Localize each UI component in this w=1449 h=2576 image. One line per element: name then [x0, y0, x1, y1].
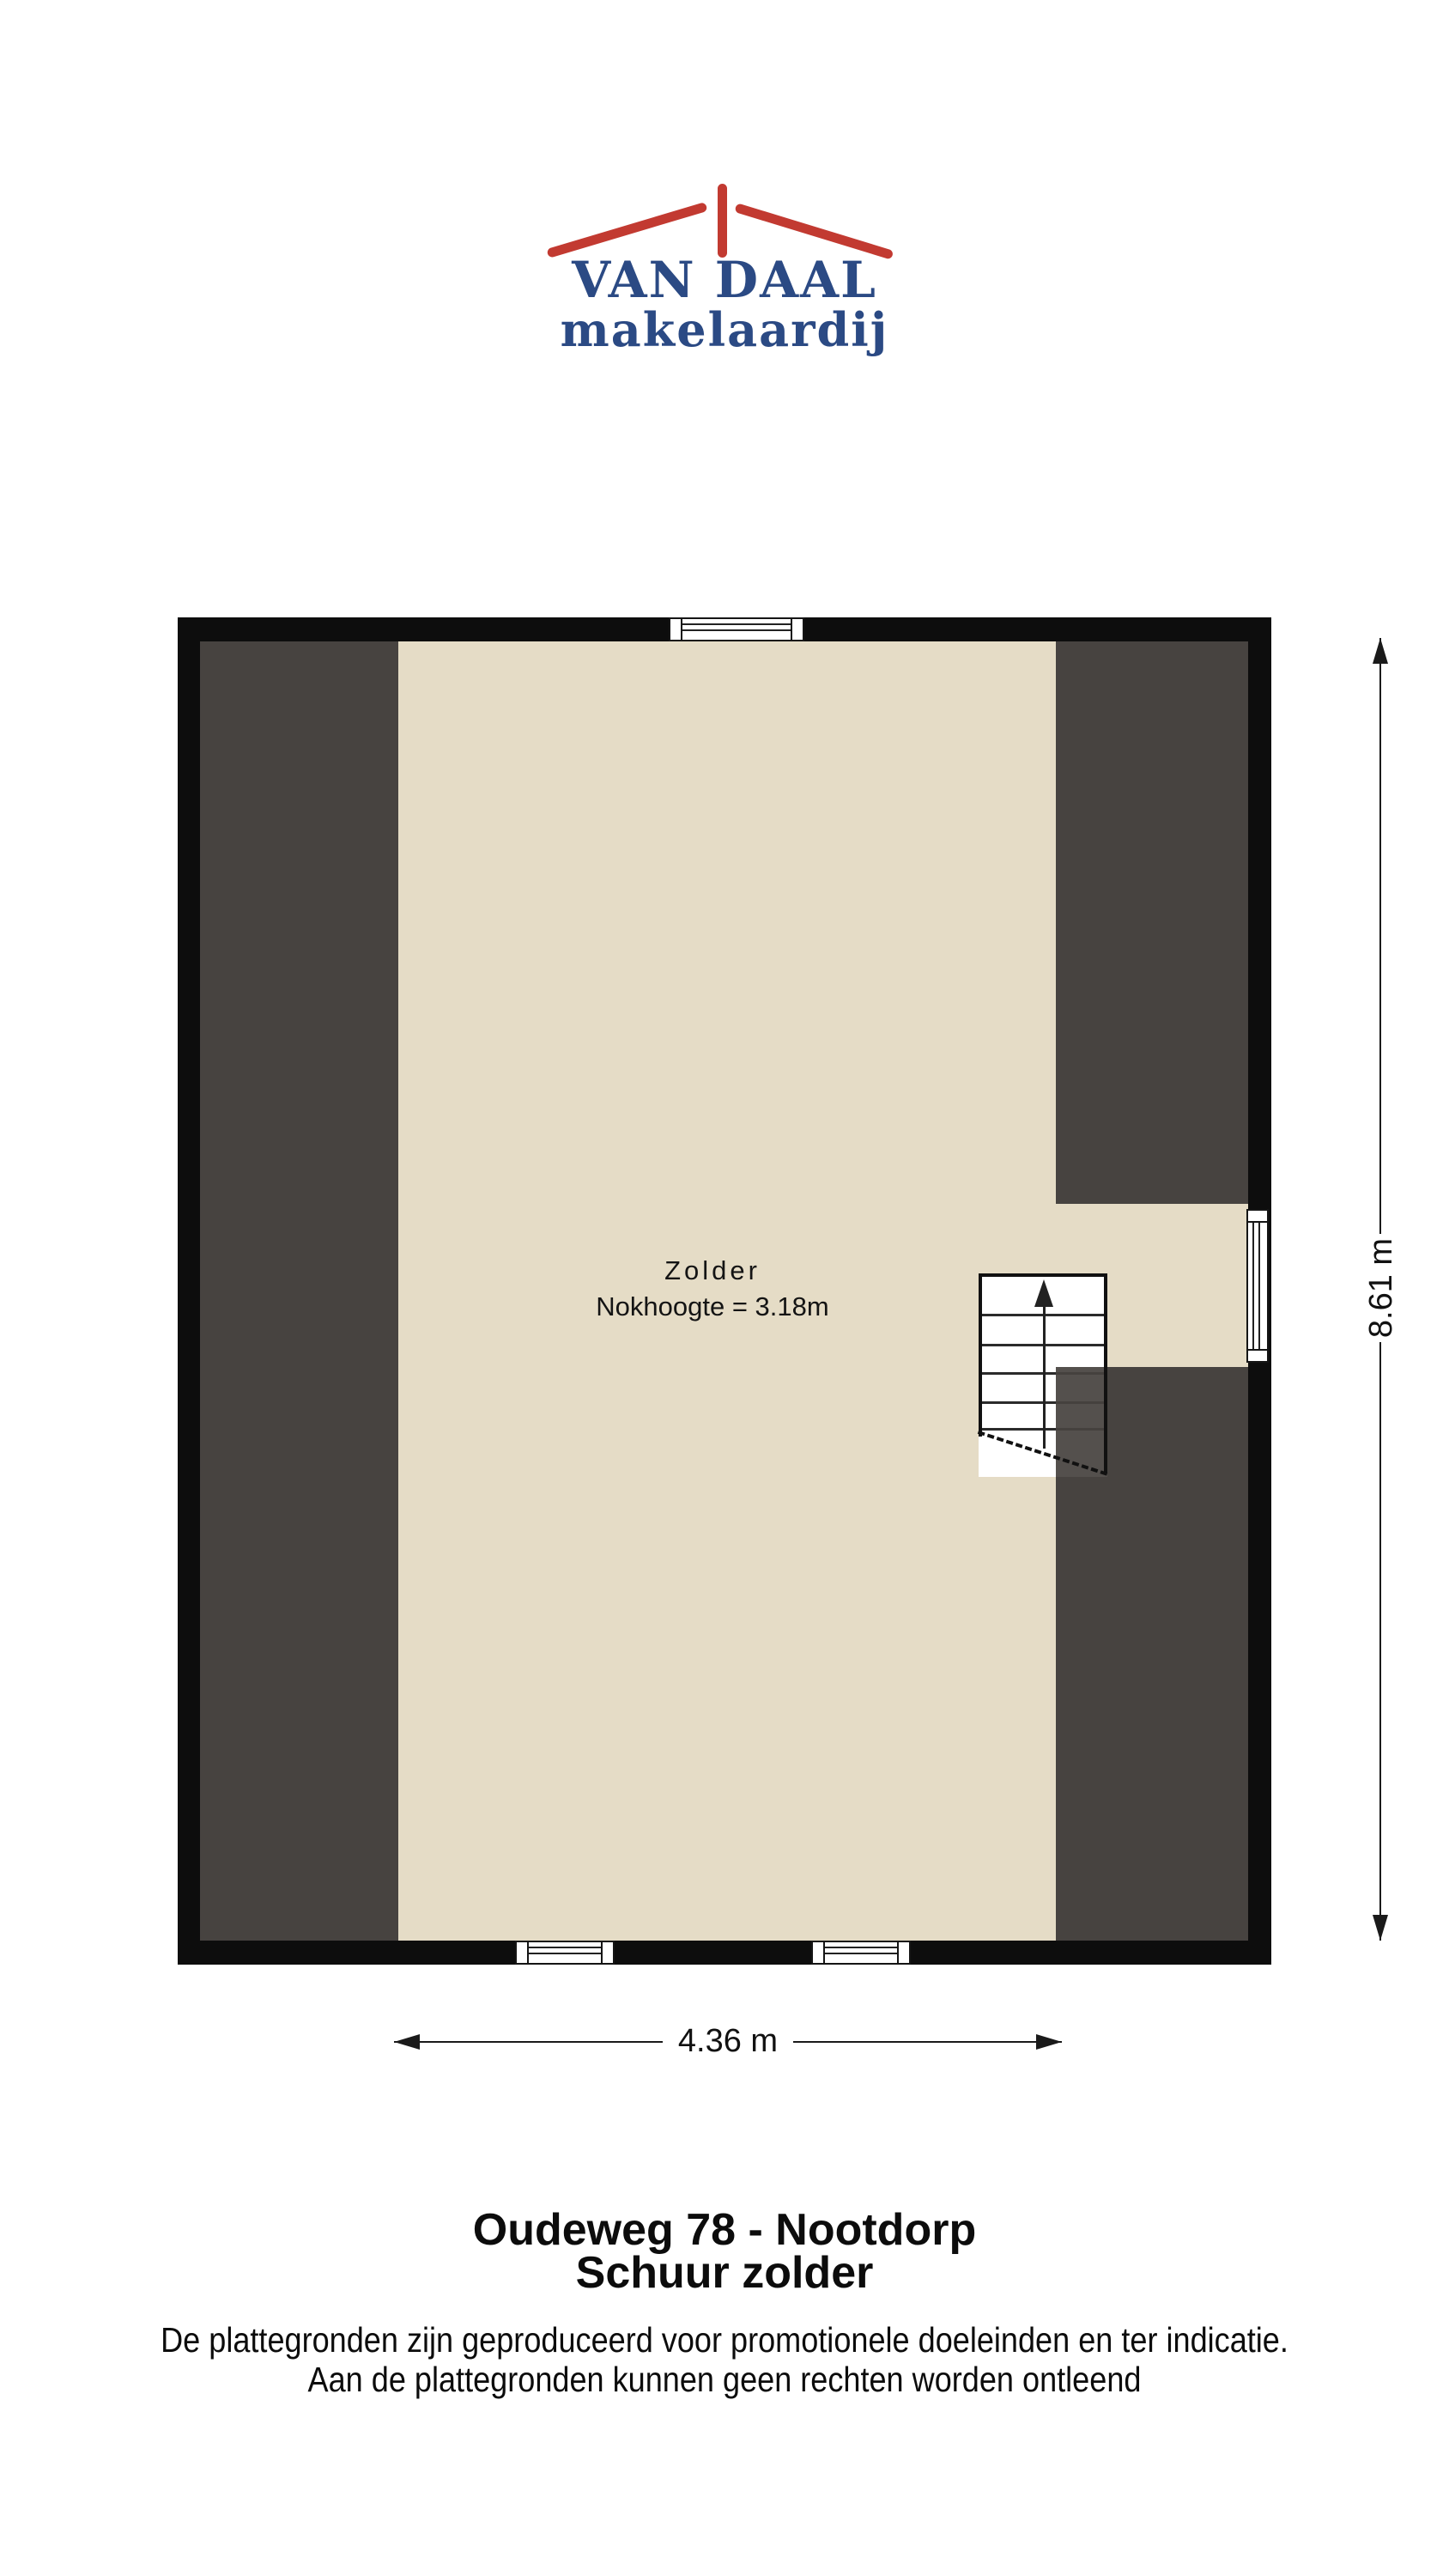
window-frame-cap: [897, 1942, 899, 1963]
window-glazing: [529, 1947, 601, 1959]
window-frame-cap: [681, 619, 682, 640]
window-frame-cap: [1248, 1221, 1267, 1223]
window-glazing: [825, 1947, 897, 1959]
logo-roof-left-icon: [546, 202, 707, 258]
roof-area-left: [200, 641, 398, 1941]
window-top: [669, 617, 804, 641]
address-title: Oudeweg 78 - Nootdorp Schuur zolder: [0, 2208, 1449, 2294]
dimension-line: [1379, 1342, 1381, 1941]
roof-area-right-bottom-below-stair: [1056, 1477, 1107, 1941]
window-bottom-left: [515, 1941, 615, 1965]
window-bottom-right: [811, 1941, 911, 1965]
dimension-arrow-left-icon: [394, 2034, 420, 2050]
stair-left-edge: [979, 1273, 982, 1437]
stair-direction-arrow: [1043, 1305, 1046, 1449]
logo-roof-ridge-icon: [718, 184, 727, 258]
page: VAN DAAL makelaardij: [0, 0, 1449, 2576]
disclaimer-line-1: De plattegronden zijn geproduceerd voor …: [87, 2320, 1361, 2360]
window-right: [1246, 1209, 1269, 1363]
window-frame-cap: [823, 1942, 825, 1963]
floor-name-line: Schuur zolder: [0, 2251, 1449, 2294]
window-glazing: [682, 623, 791, 635]
dimension-arrow-right-icon: [1036, 2034, 1062, 2050]
room-ridge-height-label: Nokhoogte = 3.18m: [584, 1291, 841, 1322]
logo-title: VAN DAAL: [0, 251, 1449, 309]
dimension-arrow-up-icon: [1373, 638, 1388, 664]
width-dimension-label: 4.36 m: [659, 2023, 797, 2060]
dimension-line: [1379, 638, 1381, 1234]
stair-right-edge: [1104, 1273, 1107, 1473]
roof-area-right-top: [1056, 641, 1248, 1204]
stair-arrow-up-icon: [1034, 1279, 1053, 1307]
stair-top-edge: [979, 1273, 1107, 1277]
dimension-line: [793, 2041, 1062, 2043]
roof-area-right-bottom: [1107, 1367, 1248, 1941]
dimension-line: [394, 2041, 663, 2043]
height-dimension-label: 8.61 m: [1363, 1219, 1397, 1357]
disclaimer-line-2: Aan de plattegronden kunnen geen rechten…: [87, 2360, 1361, 2400]
window-glazing: [1252, 1223, 1263, 1349]
window-frame-cap: [527, 1942, 529, 1963]
window-frame-cap: [601, 1942, 603, 1963]
dimension-arrow-down-icon: [1373, 1915, 1388, 1941]
logo-subtitle: makelaardij: [0, 302, 1449, 357]
window-frame-cap: [791, 619, 792, 640]
window-frame-cap: [1248, 1349, 1267, 1351]
room-label: Zolder: [584, 1255, 841, 1286]
address-line: Oudeweg 78 - Nootdorp: [0, 2208, 1449, 2251]
